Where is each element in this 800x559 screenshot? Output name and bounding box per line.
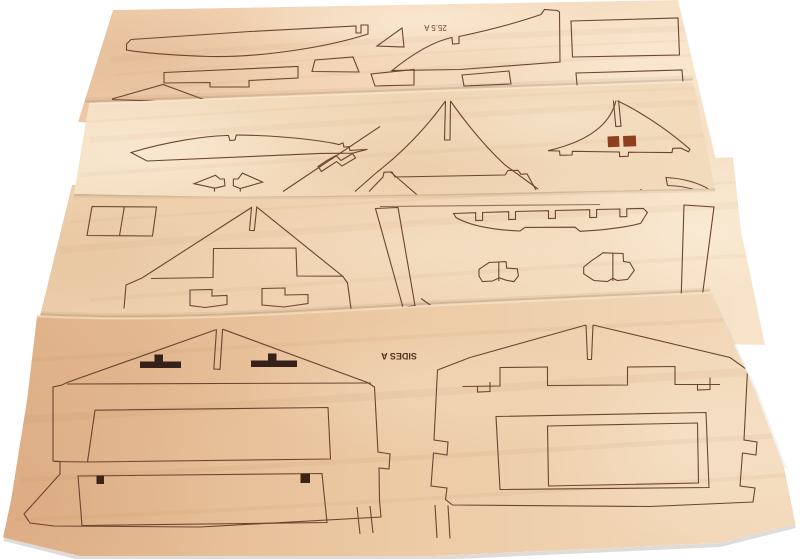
svg-text:25.5 A: 25.5 A bbox=[423, 23, 446, 32]
svg-text:SIDES A: SIDES A bbox=[381, 351, 417, 361]
